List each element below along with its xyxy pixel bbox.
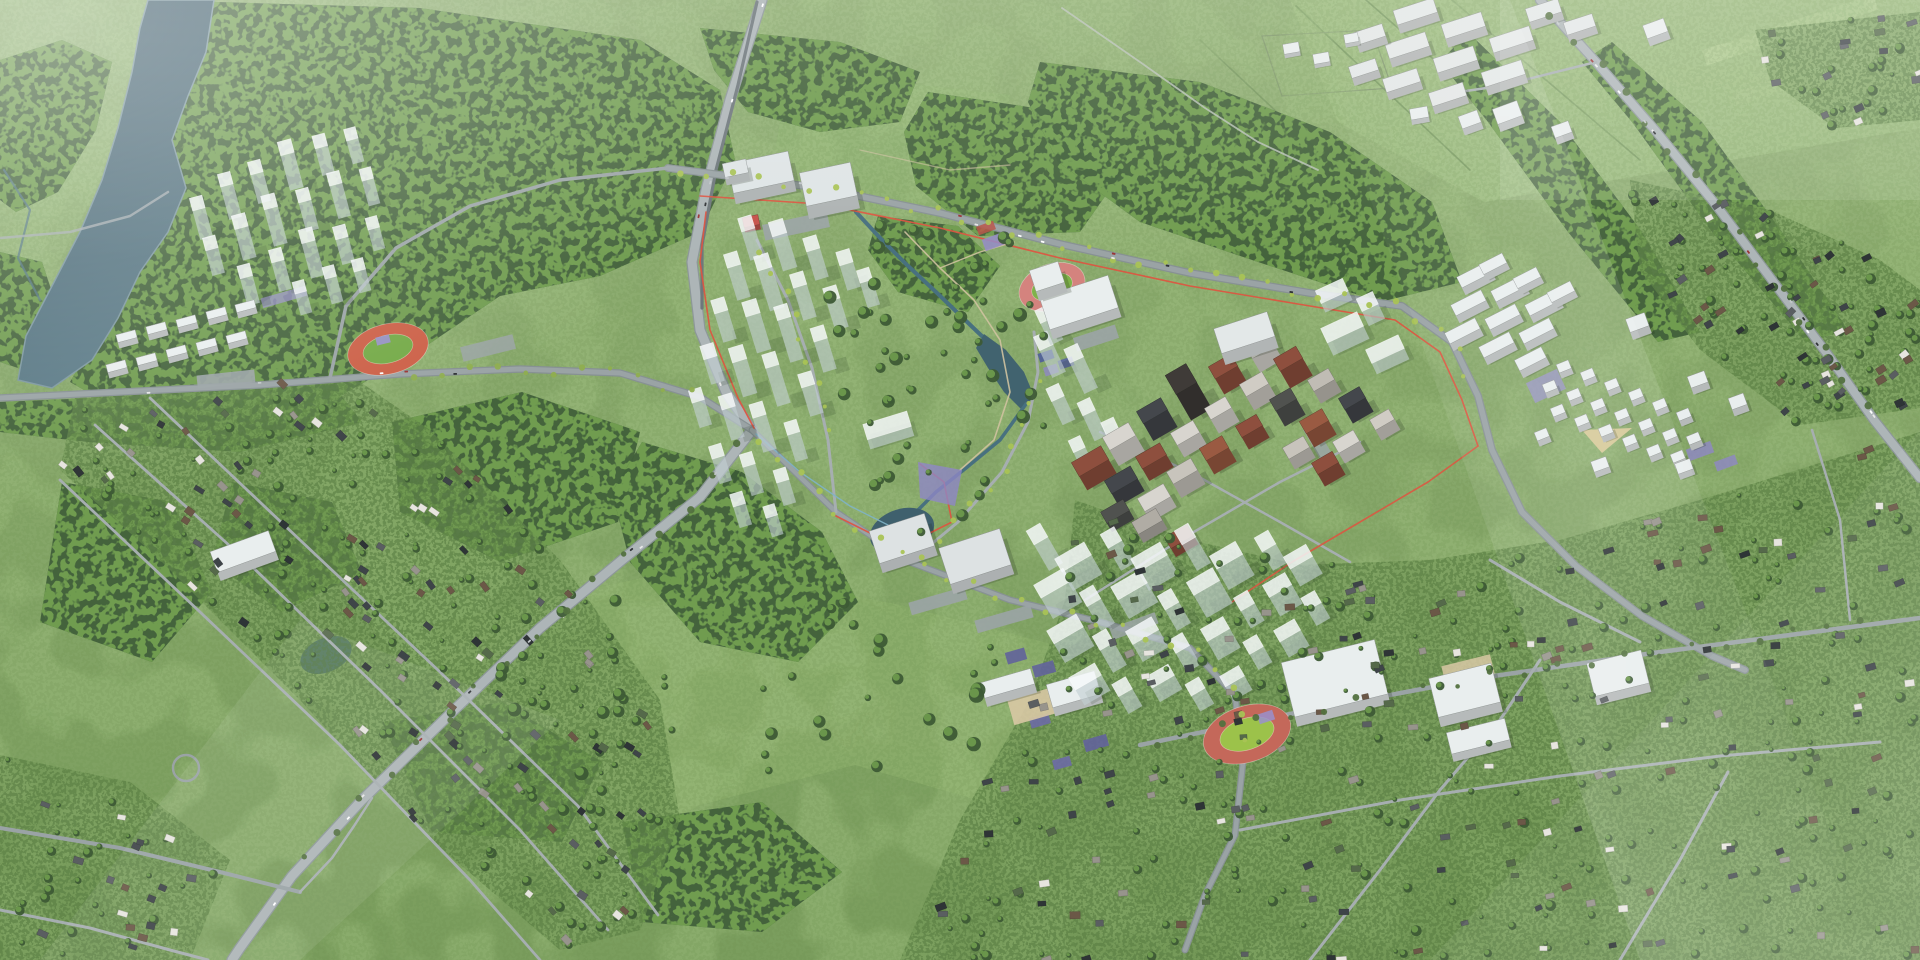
aerial-scene-canvas	[0, 0, 1920, 960]
aerial-masterplan-render	[0, 0, 1920, 960]
